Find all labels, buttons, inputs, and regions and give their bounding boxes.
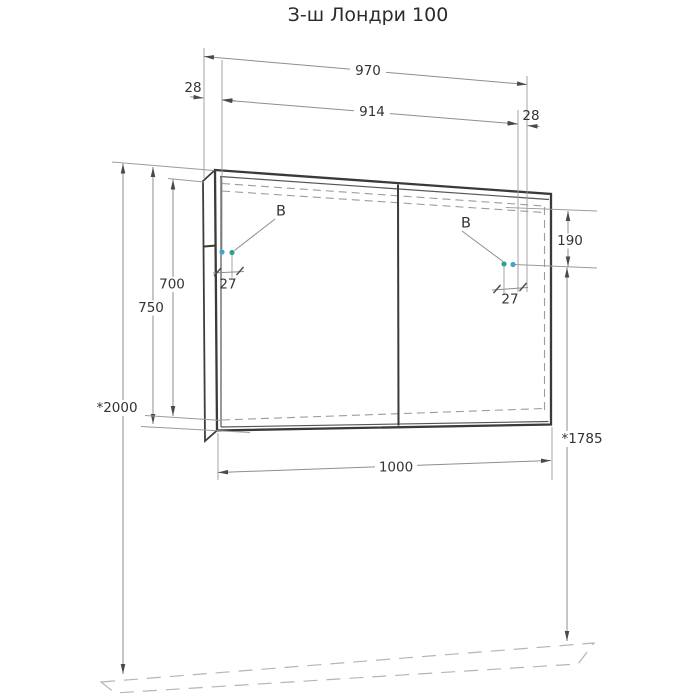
technical-drawing: З-ш Лондри 100 970 914 28: [0, 0, 700, 700]
drawing-title: З-ш Лондри 100: [288, 4, 449, 26]
floor-outline: [101, 643, 594, 693]
dim-1000: 1000: [218, 427, 552, 480]
ext-line-bottom: [145, 416, 222, 421]
dim-28-right: 28: [506, 108, 540, 127]
tick-right: [520, 283, 527, 291]
marker-label-right: В: [461, 216, 471, 232]
hinge-dot-green-right: [501, 261, 506, 266]
dim-value-28-left: 28: [184, 80, 201, 96]
dim-value-190: 190: [557, 233, 583, 249]
hinge-marker-right: В: [461, 216, 516, 268]
tick-right: [237, 267, 244, 275]
dim-arrow-left: [190, 97, 204, 98]
dim-value-970: 970: [355, 63, 381, 79]
leader-line-left: [235, 219, 276, 251]
hinge-dot-blue-right: [510, 262, 515, 267]
dim-value-1000: 1000: [379, 460, 413, 476]
dim-914: 914: [222, 60, 518, 292]
hinge-dot-blue-left: [219, 249, 224, 254]
dim-arrow-right: [528, 126, 540, 127]
marker-label-left: В: [276, 204, 286, 220]
hidden-top-line-1: [222, 184, 544, 207]
hidden-bottom-line: [222, 409, 544, 421]
hinge-plate-mark: [204, 246, 217, 247]
dim-value-1785: *1785: [561, 431, 602, 447]
drawing-page: З-ш Лондри 100 970 914 28: [0, 0, 700, 700]
dim-970: 970: [204, 48, 527, 292]
dim-28-left: 28: [184, 80, 235, 101]
dim-value-914: 914: [359, 104, 385, 120]
dim-value-750: 750: [138, 300, 164, 316]
dim-27-right: 27: [492, 267, 528, 308]
hinge-marker-left: В: [219, 204, 286, 256]
dim-value-700: 700: [159, 277, 185, 293]
dim-arrow-left: [506, 123, 518, 124]
dim-2000: *2000: [94, 164, 140, 675]
cabinet: [203, 170, 551, 441]
floor-dashed-quad: [101, 643, 594, 693]
leader-line-right: [462, 231, 503, 262]
hinge-dot-green-left: [229, 250, 234, 255]
door-top-edge: [220, 177, 549, 200]
dim-750: 750: [112, 162, 250, 433]
dim-value-2000: *2000: [96, 400, 137, 416]
dim-value-27-left: 27: [219, 277, 236, 293]
door-divider: [398, 185, 399, 426]
ext-line-bottom: [514, 265, 597, 269]
ext-line-top-shared: [112, 162, 214, 171]
dim-value-28-right: 28: [522, 108, 539, 124]
dim-1785: *1785: [560, 268, 605, 642]
dim-value-27-right: 27: [501, 292, 518, 308]
dim-27-left: 27: [213, 255, 244, 293]
